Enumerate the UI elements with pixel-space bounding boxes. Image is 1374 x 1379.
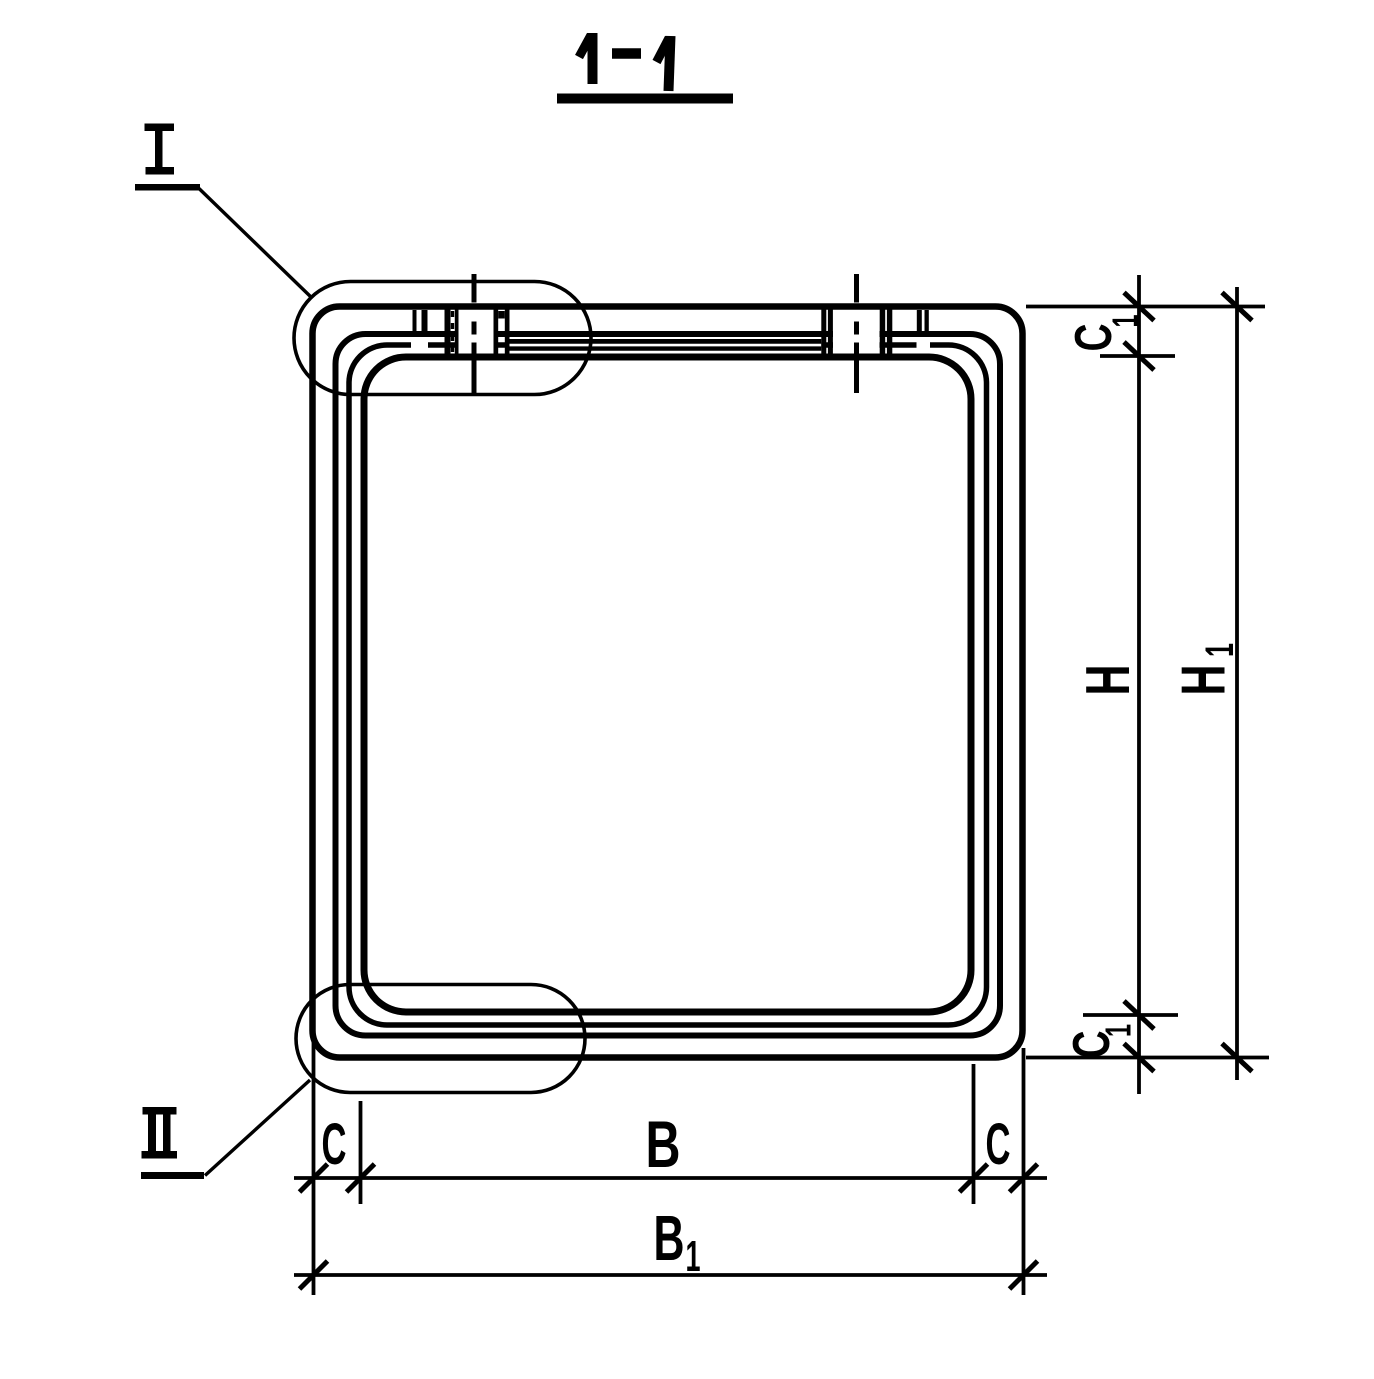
svg-text:1: 1 — [1105, 315, 1146, 328]
svg-text:H: H — [1074, 665, 1143, 696]
svg-text:B: B — [646, 1107, 681, 1181]
svg-text:1: 1 — [686, 1232, 701, 1281]
svg-text:1: 1 — [1098, 1024, 1139, 1037]
svg-text:B: B — [654, 1202, 685, 1274]
svg-text:H: H — [1170, 665, 1239, 696]
svg-text:1: 1 — [1198, 643, 1242, 657]
svg-text:C: C — [322, 1112, 347, 1177]
svg-text:C: C — [986, 1112, 1011, 1177]
